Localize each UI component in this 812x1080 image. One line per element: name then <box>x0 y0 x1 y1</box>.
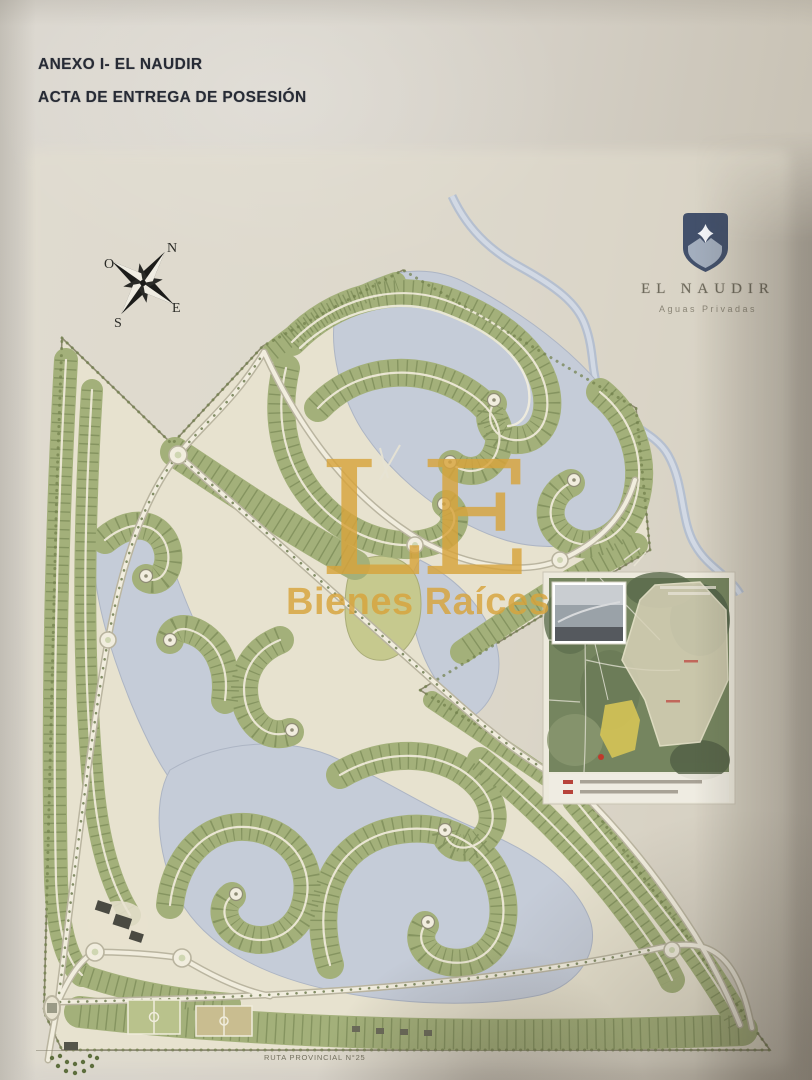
compass-south-label: S <box>114 316 122 331</box>
photo-left-vignette <box>0 0 36 1080</box>
inset-photo <box>552 582 626 644</box>
compass-east-label: E <box>172 301 181 316</box>
document-title-line2: ACTA DE ENTREGA DE POSESIÓN <box>38 89 307 107</box>
entrance-gate <box>44 996 60 1020</box>
photographed-document-page: N O E S <box>0 0 812 1080</box>
compass-west-label: O <box>104 257 114 272</box>
photographer-shadow <box>280 760 812 1080</box>
document-title-line1: ANEXO I- EL NAUDIR <box>38 56 203 74</box>
compass-north-label: N <box>167 241 177 256</box>
compass-rose-icon: N O E S <box>90 230 196 336</box>
photo-top-vignette <box>0 0 812 26</box>
